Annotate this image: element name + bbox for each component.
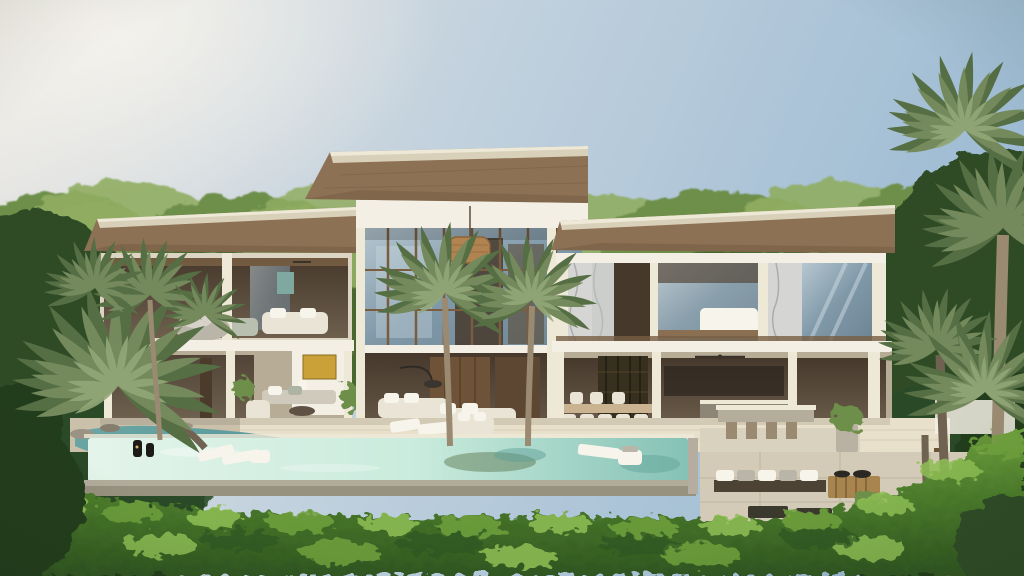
vignette bbox=[0, 0, 1024, 576]
villa-render-stage bbox=[0, 0, 1024, 576]
villa-render-image bbox=[0, 0, 1024, 576]
